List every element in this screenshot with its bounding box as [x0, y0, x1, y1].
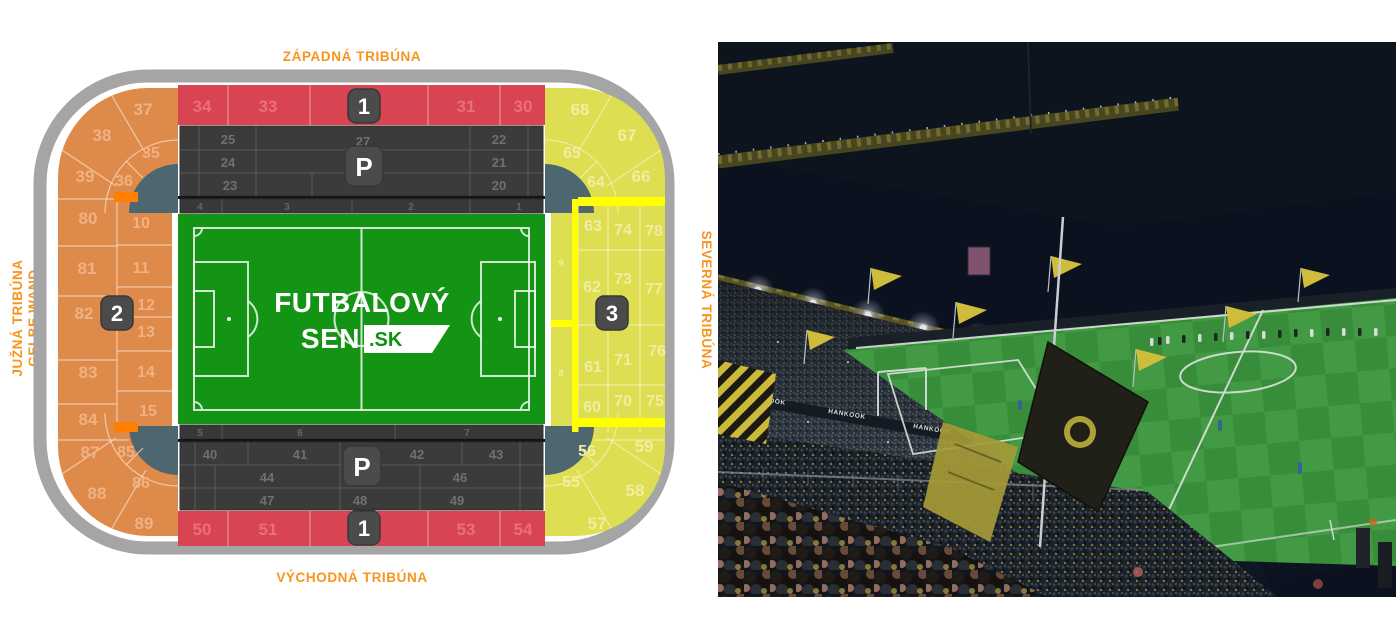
stadium-seat-map: ZÁPADNÁ TRIBÚNA VÝCHODNÁ TRIBÚNA JUŽNÁ T… — [0, 0, 718, 634]
gate-3: 3 — [284, 202, 290, 213]
section-44[interactable]: 44 — [260, 470, 275, 485]
section-46[interactable]: 46 — [453, 470, 467, 485]
section-54[interactable]: 54 — [514, 520, 533, 539]
section-31[interactable]: 31 — [457, 97, 476, 116]
section-61[interactable]: 61 — [584, 359, 602, 376]
section-82[interactable]: 82 — [75, 304, 94, 323]
section-53[interactable]: 53 — [457, 520, 476, 539]
section-35[interactable]: 35 — [142, 145, 160, 162]
south-gate-marker-top — [114, 192, 138, 202]
gate-7: 7 — [464, 428, 470, 439]
section-25[interactable]: 25 — [221, 132, 235, 147]
section-55[interactable]: 55 — [562, 474, 580, 491]
section-34[interactable]: 34 — [193, 97, 212, 116]
section-40[interactable]: 40 — [203, 447, 217, 462]
gate-row-bottom: 5 6 7 — [180, 425, 543, 439]
badge-east[interactable]: 1 — [358, 516, 370, 541]
gate-2: 2 — [408, 202, 414, 213]
section-9[interactable]: 9 — [558, 258, 563, 268]
section-56[interactable]: 56 — [578, 443, 596, 460]
pitch: FUTBALOVÝ SEN .SK — [178, 214, 545, 424]
gate-4: 4 — [197, 202, 203, 213]
section-63[interactable]: 63 — [584, 218, 602, 235]
section-77[interactable]: 77 — [645, 281, 663, 298]
gate-1: 1 — [516, 202, 522, 213]
section-57[interactable]: 57 — [588, 514, 607, 533]
section-42[interactable]: 42 — [410, 447, 424, 462]
gate-6: 6 — [297, 428, 303, 439]
section-84[interactable]: 84 — [79, 410, 98, 429]
section-14[interactable]: 14 — [137, 364, 155, 381]
north-bright-mini-bar — [551, 320, 572, 327]
section-48[interactable]: 48 — [353, 493, 367, 508]
badge-south[interactable]: 2 — [111, 301, 123, 326]
logo-line2: SEN — [301, 323, 360, 354]
section-87[interactable]: 87 — [81, 443, 100, 462]
north-bright-bar-bottom — [578, 418, 665, 427]
section-70[interactable]: 70 — [614, 393, 632, 410]
section-8[interactable]: 8 — [558, 368, 563, 378]
section-58[interactable]: 58 — [626, 481, 645, 500]
section-51[interactable]: 51 — [259, 520, 278, 539]
north-bright-bar-top — [578, 197, 665, 206]
section-50[interactable]: 50 — [193, 520, 212, 539]
gate-5: 5 — [197, 428, 203, 439]
section-85[interactable]: 85 — [117, 444, 135, 461]
section-41[interactable]: 41 — [293, 447, 307, 462]
section-33[interactable]: 33 — [259, 97, 278, 116]
section-37[interactable]: 37 — [134, 100, 153, 119]
section-10[interactable]: 10 — [132, 215, 150, 232]
section-20[interactable]: 20 — [492, 178, 506, 193]
section-88[interactable]: 88 — [88, 484, 107, 503]
section-24[interactable]: 24 — [221, 155, 236, 170]
section-62[interactable]: 62 — [583, 279, 601, 296]
badge-parking-top[interactable]: P — [355, 152, 372, 182]
north-stand-title: SEVERNÁ TRIBÚNA — [699, 231, 714, 370]
section-68[interactable]: 68 — [571, 100, 590, 119]
page: ZÁPADNÁ TRIBÚNA VÝCHODNÁ TRIBÚNA JUŽNÁ T… — [0, 0, 1400, 634]
section-71[interactable]: 71 — [614, 352, 632, 369]
section-43[interactable]: 43 — [489, 447, 503, 462]
section-12[interactable]: 12 — [137, 297, 155, 314]
section-36[interactable]: 36 — [115, 173, 133, 190]
section-66[interactable]: 66 — [632, 167, 651, 186]
section-74[interactable]: 74 — [614, 222, 632, 239]
section-81[interactable]: 81 — [78, 259, 97, 278]
gate-row-top: 4 3 2 1 — [180, 199, 543, 213]
section-89[interactable]: 89 — [135, 514, 154, 533]
section-13[interactable]: 13 — [137, 324, 155, 341]
west-stand-title: ZÁPADNÁ TRIBÚNA — [283, 49, 422, 64]
south-gate-marker-bottom — [114, 422, 138, 432]
east-stand-title: VÝCHODNÁ TRIBÚNA — [276, 570, 427, 585]
section-23[interactable]: 23 — [223, 178, 237, 193]
badge-parking-bottom[interactable]: P — [353, 452, 370, 482]
section-21[interactable]: 21 — [492, 155, 506, 170]
section-64[interactable]: 64 — [587, 174, 605, 191]
north-bright-strip-vertical — [572, 199, 578, 432]
section-60[interactable]: 60 — [583, 399, 601, 416]
section-22[interactable]: 22 — [492, 132, 506, 147]
section-47[interactable]: 47 — [260, 493, 274, 508]
section-73[interactable]: 73 — [614, 271, 632, 288]
section-11[interactable]: 11 — [133, 260, 150, 277]
section-39[interactable]: 39 — [76, 167, 95, 186]
section-15[interactable]: 15 — [139, 403, 157, 420]
section-80[interactable]: 80 — [79, 209, 98, 228]
south-stand-title-line1: JUŽNÁ TRIBÚNA — [10, 259, 25, 376]
section-83[interactable]: 83 — [79, 363, 98, 382]
section-49[interactable]: 49 — [450, 493, 464, 508]
section-30[interactable]: 30 — [514, 97, 533, 116]
badge-west[interactable]: 1 — [358, 94, 370, 119]
badge-north[interactable]: 3 — [606, 301, 618, 326]
section-75[interactable]: 75 — [646, 393, 664, 410]
section-76[interactable]: 76 — [648, 343, 666, 360]
logo-line1: FUTBALOVÝ — [274, 287, 450, 318]
logo-domain: .SK — [369, 329, 403, 351]
section-65[interactable]: 65 — [563, 145, 581, 162]
section-78[interactable]: 78 — [645, 223, 663, 240]
section-86[interactable]: 86 — [132, 475, 150, 492]
section-67[interactable]: 67 — [618, 126, 637, 145]
photo-vignette — [718, 42, 1396, 597]
section-38[interactable]: 38 — [93, 126, 112, 145]
stadium-photo: SIGNAL IDUNA PARK SIGNAL IDUNA PARK HANK… — [718, 42, 1396, 597]
section-59[interactable]: 59 — [635, 437, 654, 456]
